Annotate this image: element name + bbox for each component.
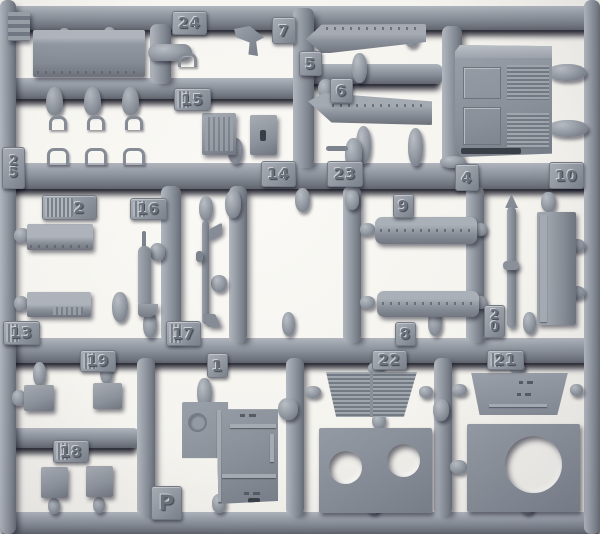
part-leaf-spring — [375, 217, 477, 244]
sprue-nub — [419, 386, 433, 398]
rivet-line — [37, 71, 141, 74]
plate-hole — [505, 436, 562, 493]
part-tag-15: 15 — [174, 88, 211, 111]
runner-v-bottom-3 — [434, 358, 452, 516]
part-seat — [84, 87, 101, 115]
tag-label: 5 — [305, 55, 316, 73]
sprue-nub — [33, 362, 46, 386]
tag-label: 13 — [10, 324, 33, 342]
tag-label: 8 — [400, 325, 411, 343]
part-tag-8: 8 — [395, 322, 416, 346]
rivet-line — [380, 229, 472, 232]
part-hull-plate — [182, 402, 278, 504]
tag-label: 2 — [74, 199, 85, 217]
sprue-nub — [570, 384, 583, 396]
part-tow-hook — [47, 148, 69, 165]
part-tall-panel — [537, 212, 576, 325]
tag-label: 6 — [336, 82, 347, 100]
sprue-nub — [14, 296, 28, 311]
rib-texture — [205, 117, 233, 151]
part-seat-legs — [49, 116, 67, 130]
tag-label: 25 — [8, 156, 20, 180]
cab-door-panel — [463, 67, 501, 99]
part-toolbox — [27, 292, 91, 317]
part-hatch — [93, 383, 122, 409]
sprue-nub — [112, 292, 128, 322]
rivet-line — [326, 27, 422, 30]
sprue-letter-tag: P — [151, 486, 182, 520]
sprue-nub — [295, 188, 310, 212]
part-tow-hook — [85, 148, 107, 165]
tag-label: 22 — [378, 351, 401, 369]
tag-label: 24 — [178, 14, 201, 32]
tag-label: 10 — [555, 167, 578, 185]
plate-hole — [387, 444, 420, 477]
cab-door-panel — [463, 107, 501, 145]
sprue-nub — [211, 275, 227, 292]
cab-shutter-ribs — [507, 65, 549, 100]
sprue-nub — [433, 399, 449, 421]
hull-ridge — [217, 410, 221, 502]
sprue-nub — [345, 190, 359, 210]
part-rifle-stock — [209, 223, 222, 242]
part-tag-1: 1 — [207, 353, 228, 378]
plate-hole — [329, 451, 362, 484]
slot-detail — [260, 130, 266, 141]
panel-edge-highlight — [540, 215, 547, 322]
sprue-nub — [48, 498, 60, 514]
rivet-line — [30, 245, 90, 248]
part-tag-17: 17 — [166, 321, 201, 346]
rivet-line — [382, 302, 474, 305]
part-tag-5: 5 — [299, 51, 322, 76]
cab-roof-face — [455, 45, 552, 58]
tag-label: 23 — [334, 165, 357, 183]
part-tag-24: 24 — [172, 11, 207, 35]
part-plate-one-hole — [467, 424, 580, 512]
part-rod-tip — [505, 194, 518, 208]
part-rifle-grip — [202, 314, 220, 327]
rivet-line — [332, 104, 428, 107]
sprue-nub — [150, 243, 165, 261]
part-fender-5 — [306, 24, 426, 53]
part-tag-6: 6 — [330, 78, 353, 103]
part-tag-19: 19 — [80, 350, 116, 372]
cab-shutter-ribs — [507, 113, 549, 149]
runner-right-border — [584, 0, 600, 534]
sprue-nub — [352, 53, 367, 83]
sprue-nub — [523, 312, 536, 334]
rib-texture — [53, 307, 83, 315]
plate-ridge — [489, 404, 547, 407]
tag-label: 9 — [398, 197, 409, 215]
part-fender-6 — [308, 93, 432, 125]
sprue-nub — [93, 497, 105, 513]
part-seat — [122, 87, 139, 115]
part-hinge-box-left — [202, 113, 236, 155]
part-hatch — [24, 385, 54, 411]
part-hinge-box-right — [250, 115, 277, 155]
part-tag-18: 18 — [53, 440, 89, 463]
tag-label: 1 — [212, 357, 223, 375]
part-cab-box — [455, 45, 552, 157]
part-tag-20: 20 — [484, 305, 505, 338]
part-hatch — [41, 467, 68, 498]
part-rifle-knob — [196, 251, 203, 262]
part-tag-25: 25 — [2, 147, 25, 189]
part-rifle — [202, 221, 209, 324]
tag-label: P — [159, 491, 174, 515]
grille-seam — [370, 372, 373, 417]
part-trapezoid-plate — [467, 373, 572, 415]
sprue-nub — [360, 223, 375, 236]
latch-detail — [244, 492, 260, 495]
sprue-nub — [305, 386, 321, 398]
part-tag-10: 10 — [549, 162, 584, 189]
runner-v-topcenter — [293, 8, 314, 168]
tag-label: 17 — [172, 325, 195, 343]
part-hatch — [86, 466, 113, 497]
tag-label: 18 — [60, 443, 83, 461]
sprue-nub — [548, 64, 586, 81]
part-seat-legs — [87, 116, 105, 130]
sprue-nub — [282, 312, 295, 336]
part-toolbox — [27, 224, 93, 250]
tag-label: 19 — [87, 352, 110, 370]
ribbed-tab — [8, 12, 30, 41]
hull-ridge — [230, 424, 276, 428]
latch-detail — [240, 414, 256, 417]
tag-label: 16 — [137, 200, 160, 218]
part-rod-collar — [503, 261, 519, 270]
hull-ridge — [222, 474, 276, 478]
runner-v-bottom-2 — [286, 358, 304, 516]
cab-bottom-shadow — [461, 148, 521, 154]
hull-ridge — [270, 434, 274, 462]
sprue-nub — [408, 128, 423, 166]
part-leaf-spring — [377, 291, 479, 317]
part-grille-plate — [321, 372, 422, 417]
part-seat-legs — [125, 116, 143, 130]
tag-label: 21 — [494, 351, 517, 369]
sprue-nub — [360, 296, 375, 309]
part-tag-4: 4 — [455, 164, 479, 191]
part-tag-22: 22 — [372, 350, 407, 370]
part-clamp — [178, 53, 197, 67]
part-tag-21: 21 — [487, 350, 524, 370]
sprue-nub — [452, 384, 467, 396]
pin-part — [326, 146, 348, 151]
runner-left-border — [0, 0, 16, 534]
latch-detail — [519, 381, 533, 384]
sprue-photo: 24 7 5 15 6 25 2 16 14 23 4 10 9 13 17 8… — [0, 0, 600, 534]
hull-circle-detail — [188, 413, 207, 432]
sprue-nub — [199, 196, 213, 221]
sprue-nub — [548, 120, 588, 137]
part-hook-bracket — [234, 26, 264, 56]
tag-rib-texture — [45, 198, 73, 217]
hull-tab — [248, 498, 260, 503]
runner-v-mid-4 — [466, 186, 484, 343]
tag-label: 14 — [267, 165, 290, 183]
part-tag-13: 13 — [3, 321, 40, 345]
sprue-nub — [541, 192, 556, 212]
part-tag-9: 9 — [393, 194, 414, 218]
sprue-nub — [278, 398, 298, 420]
tag-label: 7 — [278, 22, 289, 40]
part-tag-2: 2 — [42, 195, 97, 220]
tag-label: 4 — [461, 169, 472, 187]
part-tag-7: 7 — [272, 17, 296, 44]
part-tag-14: 14 — [261, 161, 296, 187]
part-plate-two-holes — [319, 428, 432, 513]
tag-label: 20 — [489, 310, 501, 334]
sprue-nub — [225, 190, 241, 218]
part-tag-23: 23 — [327, 161, 363, 187]
part-cargo-box — [33, 30, 145, 77]
sprue-nub — [450, 460, 467, 474]
part-tow-hook — [123, 148, 145, 165]
part-seat — [46, 87, 63, 115]
latch-detail — [517, 393, 531, 396]
tag-label: 15 — [181, 91, 204, 109]
part-tag-16: 16 — [130, 198, 167, 220]
part-exhaust-body — [138, 246, 151, 308]
